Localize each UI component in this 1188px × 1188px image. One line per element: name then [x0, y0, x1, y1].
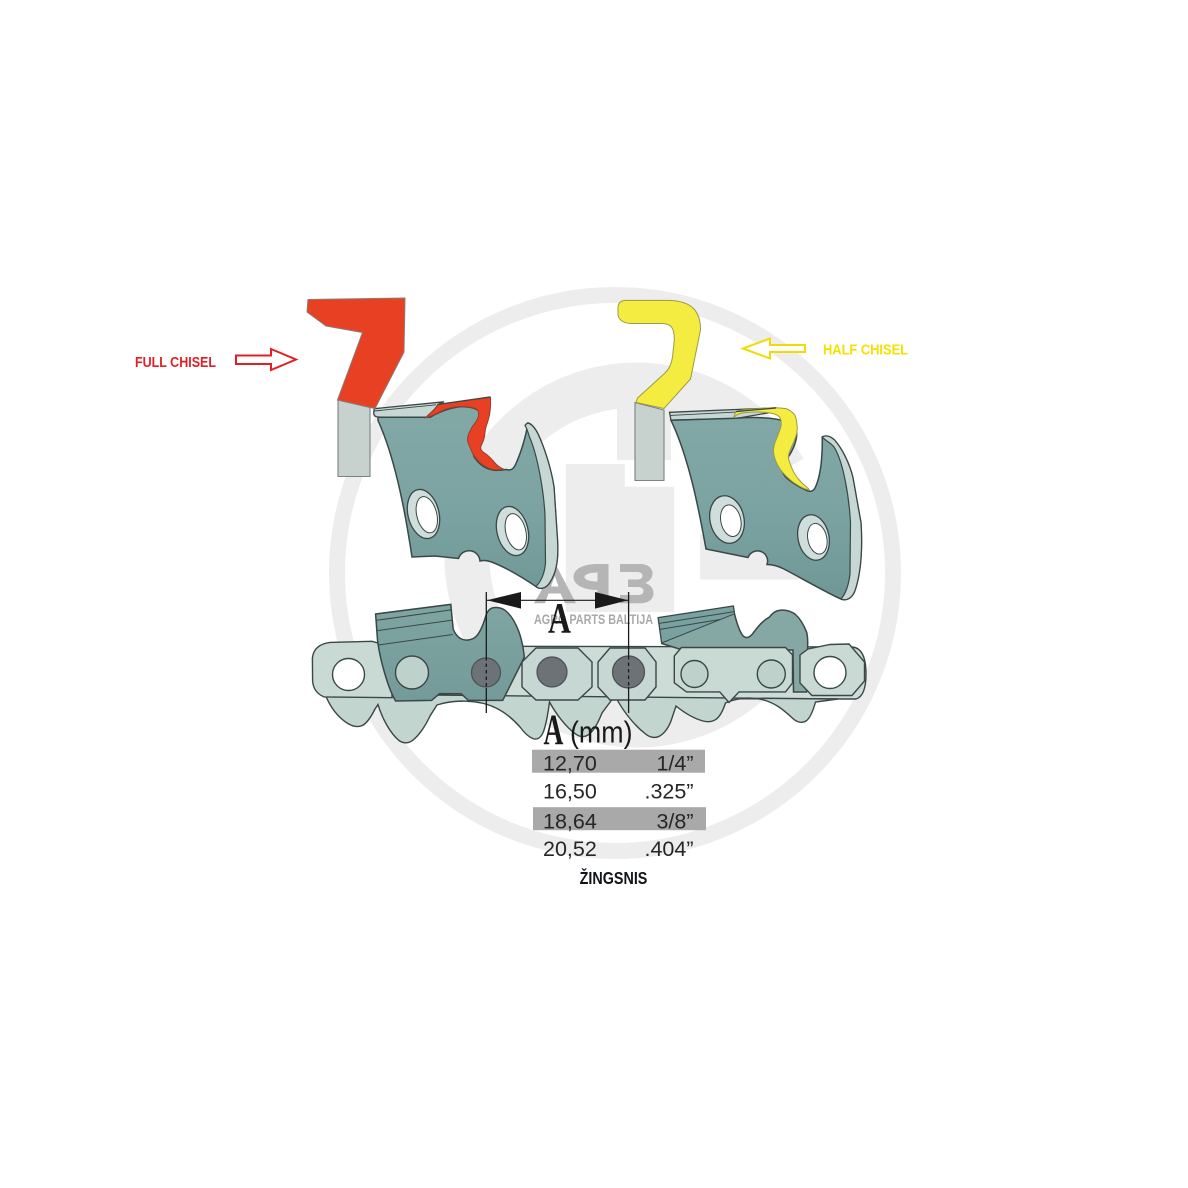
- svg-text:FULL CHISEL: FULL CHISEL: [135, 355, 216, 371]
- svg-text:(mm): (mm): [570, 715, 633, 750]
- svg-text:18,64: 18,64: [543, 810, 597, 834]
- svg-text:20,52: 20,52: [543, 837, 597, 861]
- svg-text:12,70: 12,70: [543, 752, 597, 776]
- svg-text:16,50: 16,50: [543, 779, 597, 803]
- svg-text:.325”: .325”: [644, 779, 693, 803]
- svg-text:A: A: [544, 706, 564, 754]
- svg-text:HALF CHISEL: HALF CHISEL: [823, 343, 908, 359]
- svg-text:1/4”: 1/4”: [656, 752, 693, 776]
- svg-text:.404”: .404”: [644, 837, 693, 861]
- svg-text:ŽINGSNIS: ŽINGSNIS: [580, 868, 648, 889]
- svg-text:A: A: [548, 595, 572, 643]
- svg-text:3/8”: 3/8”: [656, 810, 693, 834]
